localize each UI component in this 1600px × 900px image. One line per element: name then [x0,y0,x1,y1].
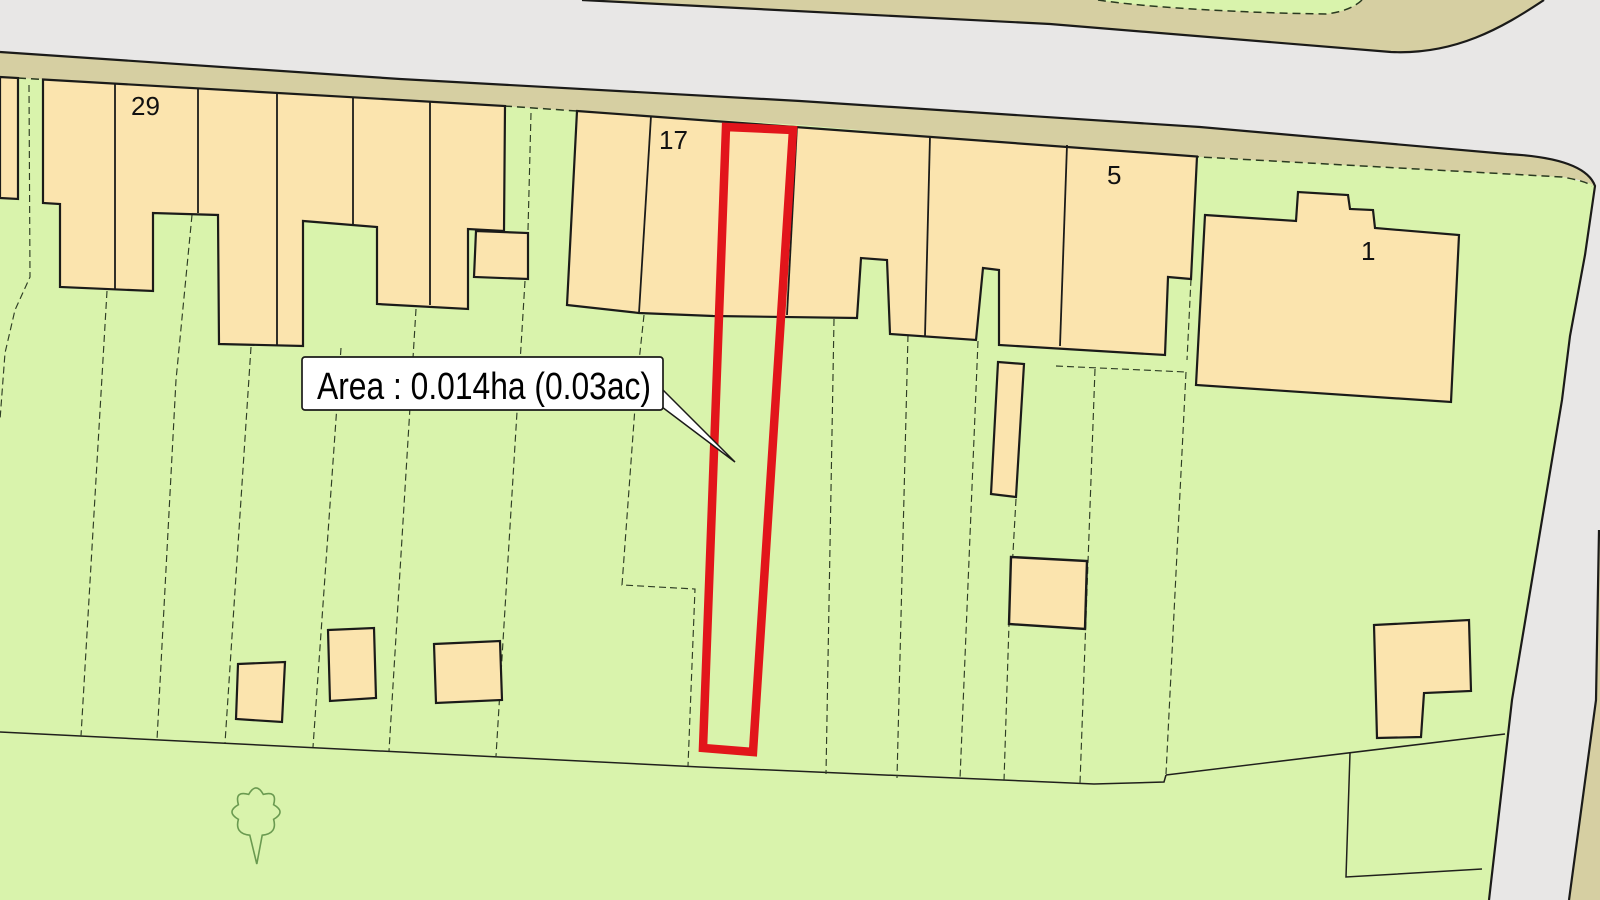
svg-text:Area : 0.014ha (0.03ac): Area : 0.014ha (0.03ac) [317,366,651,408]
svg-text:1: 1 [1361,236,1375,266]
svg-text:17: 17 [659,125,688,155]
svg-text:5: 5 [1107,160,1121,190]
svg-text:29: 29 [131,91,160,121]
